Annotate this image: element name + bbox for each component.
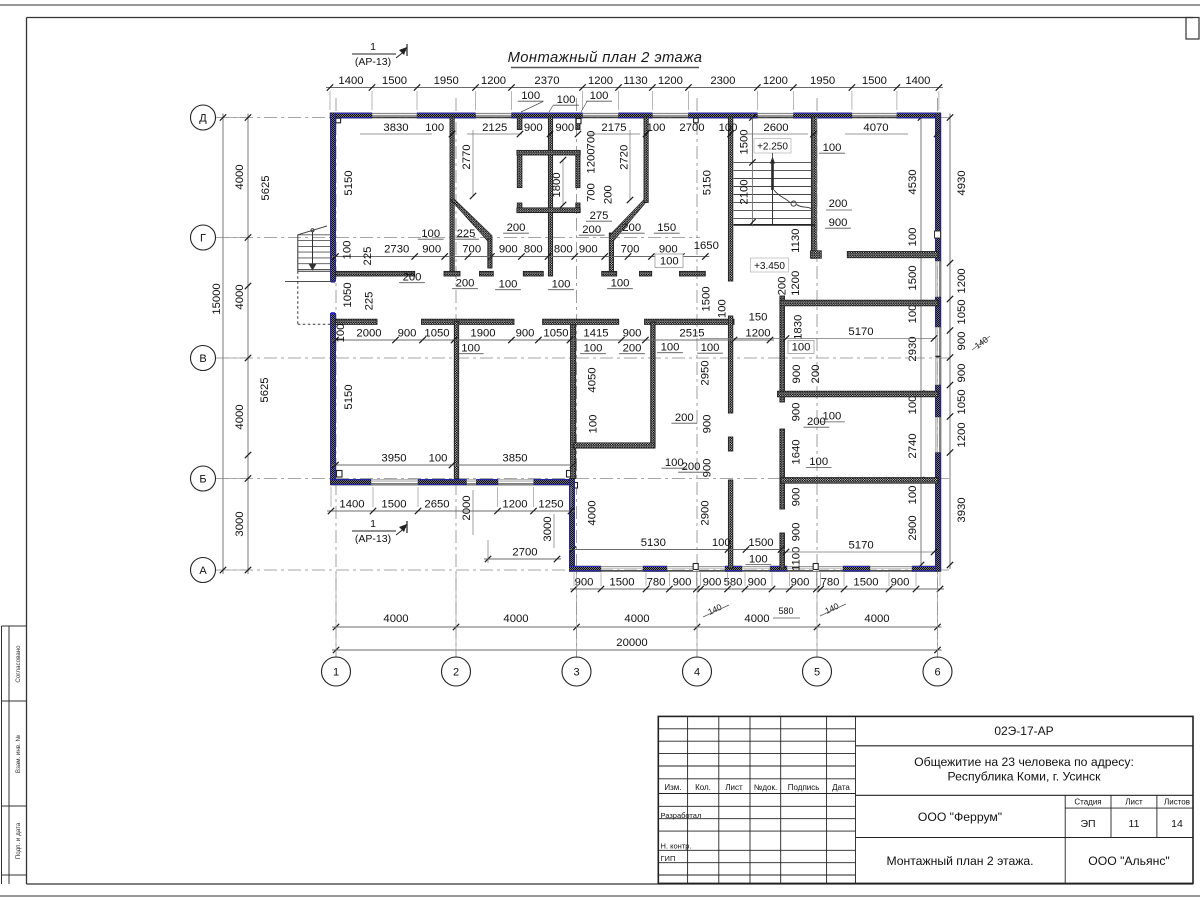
svg-text:4000: 4000	[624, 613, 649, 625]
svg-text:1: 1	[370, 41, 376, 53]
svg-text:1500: 1500	[748, 537, 773, 549]
svg-text:200: 200	[622, 222, 641, 234]
svg-text:800: 800	[524, 244, 543, 256]
svg-text:2900: 2900	[700, 500, 712, 525]
svg-text:Стадия: Стадия	[1074, 798, 1101, 807]
svg-text:100: 100	[590, 90, 609, 102]
svg-text:ООО "Альянс": ООО "Альянс"	[1088, 854, 1170, 868]
svg-text:100: 100	[823, 142, 842, 154]
svg-text:100: 100	[719, 122, 738, 134]
svg-text:5170: 5170	[848, 326, 873, 338]
svg-text:900: 900	[422, 244, 441, 256]
svg-text:100: 100	[587, 415, 599, 434]
svg-text:200: 200	[675, 412, 694, 424]
svg-text:Листов: Листов	[1164, 798, 1190, 807]
svg-text:3000: 3000	[542, 516, 554, 541]
svg-text:11: 11	[1129, 818, 1140, 830]
svg-text:1500: 1500	[862, 75, 887, 87]
svg-text:100: 100	[661, 342, 680, 354]
svg-text:2900: 2900	[907, 515, 919, 540]
svg-text:100: 100	[660, 256, 679, 268]
svg-text:1200: 1200	[588, 75, 613, 87]
svg-text:+3.450: +3.450	[754, 261, 785, 272]
svg-text:2720: 2720	[618, 145, 630, 170]
svg-text:3930: 3930	[956, 497, 968, 522]
svg-text:4000: 4000	[234, 404, 246, 429]
svg-text:3000: 3000	[234, 511, 246, 536]
svg-text:4530: 4530	[907, 169, 919, 194]
svg-text:1500: 1500	[907, 265, 919, 290]
svg-text:Кол.: Кол.	[695, 783, 711, 792]
svg-text:1: 1	[333, 667, 339, 679]
svg-text:2700: 2700	[512, 547, 537, 559]
svg-text:1400: 1400	[339, 499, 364, 511]
svg-text:100: 100	[584, 343, 603, 355]
svg-text:Монтажный план 2 этажа.: Монтажный план 2 этажа.	[886, 854, 1033, 868]
svg-text:200: 200	[603, 185, 615, 204]
svg-text:1200: 1200	[481, 75, 506, 87]
svg-text:780: 780	[821, 577, 840, 589]
svg-text:900: 900	[516, 328, 535, 340]
svg-text:1500: 1500	[381, 499, 406, 511]
svg-text:2175: 2175	[601, 122, 626, 134]
svg-text:100: 100	[421, 228, 440, 240]
svg-text:900: 900	[703, 577, 722, 589]
svg-text:900: 900	[673, 577, 692, 589]
svg-text:1130: 1130	[790, 229, 802, 253]
svg-text:3830: 3830	[383, 122, 408, 134]
svg-text:1200: 1200	[763, 75, 788, 87]
svg-text:1800: 1800	[551, 172, 563, 197]
svg-text:1130: 1130	[623, 75, 647, 87]
svg-text:900: 900	[579, 244, 598, 256]
svg-text:Подп. и дата: Подп. и дата	[15, 822, 22, 859]
svg-text:780: 780	[647, 577, 666, 589]
svg-text:3: 3	[573, 667, 579, 679]
svg-text:225: 225	[457, 228, 476, 240]
svg-text:275: 275	[590, 210, 609, 222]
svg-text:3850: 3850	[502, 453, 527, 465]
svg-text:1200: 1200	[745, 327, 770, 339]
svg-text:1200: 1200	[502, 499, 527, 511]
svg-text:В: В	[199, 353, 206, 365]
svg-text:ООО "Феррум": ООО "Феррум"	[918, 810, 1002, 824]
svg-text:100: 100	[552, 279, 571, 291]
svg-text:1050: 1050	[956, 389, 968, 414]
svg-text:15000: 15000	[211, 283, 223, 314]
svg-text:1200: 1200	[956, 422, 968, 447]
svg-text:900: 900	[499, 244, 518, 256]
svg-text:900: 900	[524, 122, 543, 134]
svg-text:Изм.: Изм.	[664, 783, 681, 792]
svg-text:150: 150	[749, 311, 768, 323]
svg-text:Д: Д	[199, 113, 207, 125]
svg-text:14: 14	[1171, 818, 1183, 830]
svg-text:100: 100	[749, 553, 768, 565]
svg-text:Республика Коми, г. Усинск: Республика Коми, г. Усинск	[948, 770, 1102, 784]
svg-text:1500: 1500	[609, 577, 634, 589]
svg-text:1200: 1200	[790, 271, 802, 296]
svg-text:900: 900	[956, 364, 968, 383]
svg-text:100: 100	[809, 456, 828, 468]
svg-text:1500: 1500	[739, 129, 751, 154]
svg-text:225: 225	[362, 247, 374, 266]
svg-text:100: 100	[907, 228, 919, 247]
svg-text:1050: 1050	[543, 328, 568, 340]
svg-text:1200: 1200	[586, 148, 598, 173]
svg-text:1640: 1640	[791, 439, 803, 464]
svg-text:Дата: Дата	[832, 783, 850, 792]
svg-text:200: 200	[456, 278, 475, 290]
svg-text:4070: 4070	[863, 122, 888, 134]
svg-text:2: 2	[453, 667, 459, 679]
svg-text:100: 100	[429, 453, 448, 465]
svg-text:200: 200	[810, 365, 822, 384]
svg-text:(АР-13): (АР-13)	[355, 533, 391, 545]
svg-text:5170: 5170	[849, 540, 874, 552]
svg-text:100: 100	[335, 324, 347, 343]
svg-text:Подпись: Подпись	[788, 783, 820, 792]
svg-text:900: 900	[623, 328, 642, 340]
svg-text:5150: 5150	[702, 170, 714, 195]
svg-text:200: 200	[829, 198, 848, 210]
svg-text:4000: 4000	[586, 500, 598, 525]
svg-text:700: 700	[586, 131, 598, 150]
svg-text:200: 200	[582, 224, 601, 236]
svg-text:1250: 1250	[538, 499, 563, 511]
svg-text:900: 900	[748, 577, 767, 589]
svg-text:4000: 4000	[503, 613, 528, 625]
svg-text:№док.: №док.	[754, 783, 777, 792]
svg-text:900: 900	[829, 217, 848, 229]
svg-text:700: 700	[462, 244, 481, 256]
svg-text:900: 900	[791, 488, 803, 507]
svg-text:2000: 2000	[461, 495, 473, 520]
svg-text:3950: 3950	[381, 453, 406, 465]
svg-text:4: 4	[694, 667, 700, 679]
svg-text:5150: 5150	[343, 384, 355, 409]
svg-text:2770: 2770	[461, 144, 473, 169]
svg-text:1500: 1500	[853, 577, 878, 589]
svg-text:1050: 1050	[424, 328, 449, 340]
svg-text:2930: 2930	[907, 336, 919, 361]
svg-text:4000: 4000	[383, 613, 408, 625]
svg-text:Б: Б	[199, 474, 206, 486]
svg-text:580: 580	[724, 577, 743, 589]
svg-text:1050: 1050	[342, 282, 354, 307]
svg-text:900: 900	[791, 365, 803, 384]
svg-text:100: 100	[907, 486, 919, 505]
svg-text:900: 900	[891, 577, 910, 589]
svg-text:1650: 1650	[694, 240, 719, 252]
svg-text:5130: 5130	[641, 537, 666, 549]
svg-text:1400: 1400	[338, 75, 363, 87]
svg-text:900: 900	[791, 523, 803, 542]
svg-text:20000: 20000	[616, 637, 647, 649]
svg-text:225: 225	[364, 292, 376, 311]
svg-text:900: 900	[702, 459, 714, 478]
svg-text:800: 800	[554, 244, 573, 256]
svg-text:900: 900	[555, 122, 574, 134]
svg-text:900: 900	[956, 332, 968, 351]
svg-text:1830: 1830	[793, 315, 805, 340]
svg-text:А: А	[199, 565, 207, 577]
svg-text:4000: 4000	[234, 284, 246, 309]
svg-text:1900: 1900	[470, 328, 495, 340]
svg-text:1: 1	[370, 518, 376, 530]
svg-text:100: 100	[907, 305, 919, 324]
svg-text:200: 200	[777, 277, 789, 296]
svg-text:200: 200	[403, 272, 422, 284]
svg-text:100: 100	[647, 122, 666, 134]
svg-text:4000: 4000	[234, 164, 246, 189]
svg-text:900: 900	[791, 403, 803, 422]
svg-text:Общежитие на 23 человека по ад: Общежитие на 23 человека по адресу:	[914, 755, 1134, 769]
svg-text:1950: 1950	[810, 75, 835, 87]
svg-text:150: 150	[657, 222, 676, 234]
svg-text:100: 100	[521, 90, 540, 102]
svg-text:900: 900	[791, 577, 810, 589]
svg-text:2515: 2515	[679, 328, 704, 340]
svg-text:2100: 2100	[739, 179, 751, 204]
svg-text:5625: 5625	[259, 377, 271, 402]
svg-text:1500: 1500	[701, 286, 713, 311]
svg-text:100: 100	[701, 342, 720, 354]
svg-text:700: 700	[586, 183, 598, 202]
svg-text:ГИП: ГИП	[661, 854, 676, 863]
svg-text:4000: 4000	[864, 613, 889, 625]
svg-text:200: 200	[682, 461, 701, 473]
svg-text:100: 100	[611, 278, 630, 290]
svg-text:Лист: Лист	[1125, 798, 1143, 807]
svg-text:2740: 2740	[907, 433, 919, 458]
svg-text:Лист: Лист	[725, 783, 743, 792]
svg-text:ЭП: ЭП	[1080, 818, 1095, 830]
svg-text:2370: 2370	[534, 75, 559, 87]
svg-text:1200: 1200	[956, 268, 968, 293]
svg-text:02Э-17-АР: 02Э-17-АР	[994, 724, 1053, 738]
svg-text:100: 100	[907, 396, 919, 415]
svg-text:900: 900	[575, 577, 594, 589]
svg-text:2300: 2300	[710, 75, 735, 87]
svg-text:100: 100	[717, 299, 729, 318]
svg-text:5150: 5150	[343, 170, 355, 195]
svg-text:1100: 1100	[791, 547, 803, 571]
svg-text:700: 700	[621, 244, 640, 256]
svg-text:100: 100	[499, 279, 518, 291]
svg-text:Н. контр.: Н. контр.	[661, 842, 692, 851]
svg-text:Взам. инв. №: Взам. инв. №	[15, 734, 22, 773]
svg-text:100: 100	[461, 343, 480, 355]
svg-text:Разработал: Разработал	[661, 811, 702, 820]
svg-text:(АР-13): (АР-13)	[355, 56, 391, 68]
svg-text:+2.250: +2.250	[757, 142, 788, 153]
svg-text:100: 100	[822, 411, 841, 423]
svg-text:200: 200	[507, 222, 526, 234]
svg-text:5: 5	[814, 667, 820, 679]
svg-text:2600: 2600	[763, 122, 788, 134]
svg-text:900: 900	[702, 415, 714, 434]
svg-text:1200: 1200	[658, 75, 683, 87]
svg-text:4000: 4000	[744, 613, 769, 625]
svg-text:100: 100	[425, 122, 444, 134]
svg-text:100: 100	[341, 241, 353, 260]
svg-text:100: 100	[557, 94, 576, 106]
svg-text:900: 900	[398, 328, 417, 340]
svg-text:4930: 4930	[956, 170, 968, 195]
svg-text:580: 580	[778, 606, 793, 616]
svg-text:1415: 1415	[583, 328, 608, 340]
svg-text:Согласовано: Согласовано	[15, 645, 22, 683]
svg-text:1400: 1400	[905, 75, 930, 87]
svg-text:Монтажный план 2 этажа: Монтажный план 2 этажа	[508, 50, 703, 66]
svg-text:1500: 1500	[382, 75, 407, 87]
svg-text:2950: 2950	[700, 360, 712, 385]
svg-text:Г: Г	[200, 233, 206, 245]
svg-text:1950: 1950	[434, 75, 459, 87]
svg-text:100: 100	[712, 537, 731, 549]
svg-text:100: 100	[792, 342, 811, 354]
svg-text:2125: 2125	[482, 122, 507, 134]
svg-text:4050: 4050	[586, 367, 598, 392]
svg-text:5625: 5625	[260, 175, 272, 200]
svg-text:2000: 2000	[356, 328, 381, 340]
svg-text:1050: 1050	[956, 299, 968, 324]
svg-text:2730: 2730	[384, 244, 409, 256]
svg-text:2700: 2700	[679, 122, 704, 134]
svg-text:2650: 2650	[424, 499, 449, 511]
svg-text:200: 200	[623, 343, 642, 355]
svg-text:6: 6	[934, 667, 940, 679]
